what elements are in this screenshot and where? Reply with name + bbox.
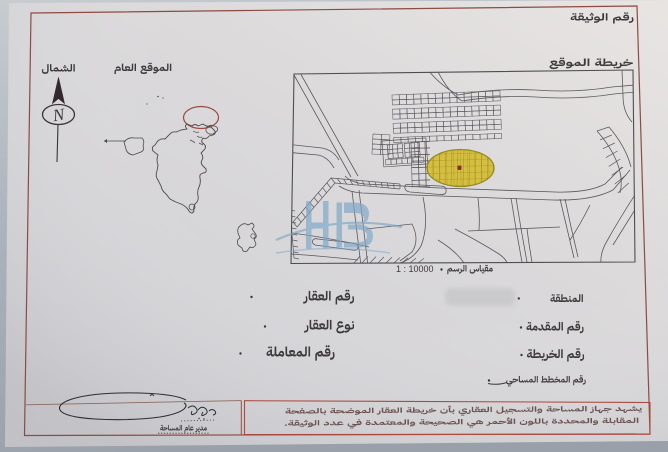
svg-text:1 : 10000: 1 : 10000: [396, 264, 434, 274]
